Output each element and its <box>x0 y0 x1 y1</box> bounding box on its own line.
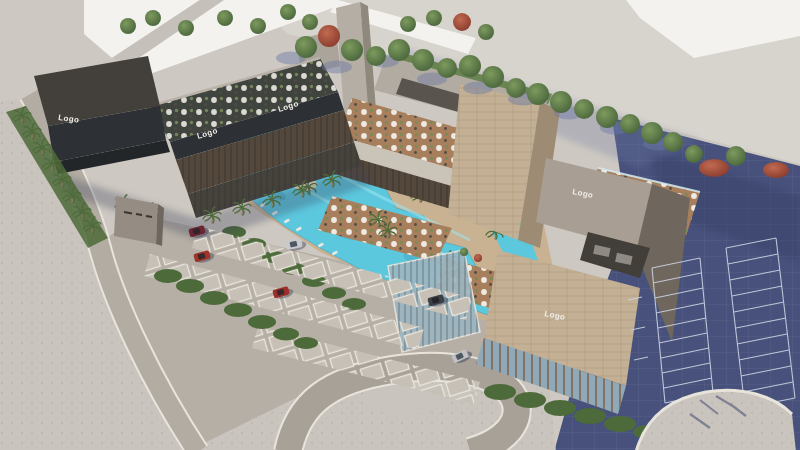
roof-planter-green <box>460 248 468 256</box>
red-bush <box>763 162 789 178</box>
architectural-rendering: Logo Logo Logo Logo Logo <box>0 0 800 450</box>
red-tree <box>453 13 471 31</box>
roof-planter-red <box>474 254 482 262</box>
scene-canvas: Logo Logo Logo Logo Logo <box>0 0 800 450</box>
red-bush <box>699 159 729 177</box>
red-tree <box>318 25 340 47</box>
